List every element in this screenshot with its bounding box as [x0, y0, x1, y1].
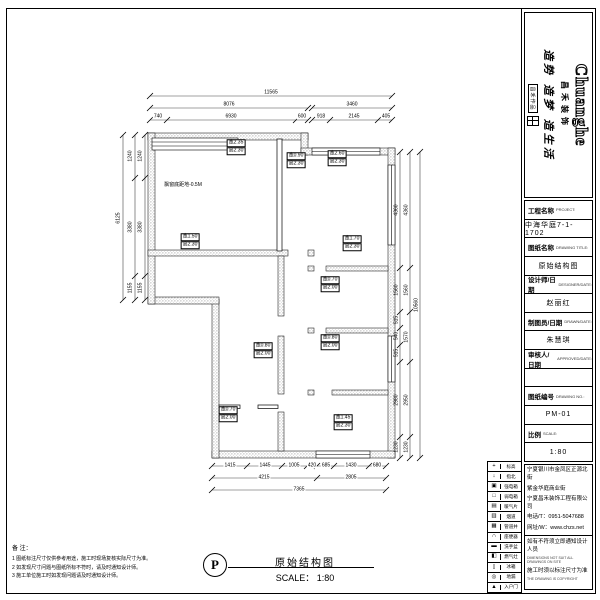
title-row-label: 工程名称PROJECT: — [525, 201, 592, 220]
window-size-label: 宽1.50高2.30 — [181, 233, 200, 249]
dimension-text: 1560 — [405, 284, 410, 295]
title-row-value: 赵丽红 — [525, 294, 592, 313]
legend-table: +标高↓指北▣强电箱□弱电箱▤暖气片▥烟道▦管道井∩座便器▬洗手盆◧燃气灶▯冰箱… — [487, 461, 522, 593]
dimension-text: 1155 — [139, 283, 144, 294]
note-line: 1 图纸标注尺寸仅供参考用途，施工时现场复核实际尺寸为准。 — [12, 555, 187, 564]
window-size-label: 宽0.70高2.00 — [219, 406, 238, 422]
legend-row: ◎地漏 — [488, 573, 521, 583]
label-height: 高2.30 — [287, 160, 306, 168]
field-label-en: APPROVED/DATE: — [557, 356, 592, 361]
dimension-text: 1240 — [139, 150, 144, 161]
dimension-text: 1240 — [129, 150, 134, 161]
label-width: 宽2.35 — [227, 139, 246, 147]
燃气灶-icon: ◧ — [488, 554, 501, 560]
window-grid-icon — [527, 116, 539, 126]
legend-label: 标高 — [501, 464, 521, 470]
弱电箱-icon: □ — [488, 494, 501, 500]
label-width: 宽0.70 — [219, 406, 238, 414]
title-row-value: PM-01 — [525, 406, 592, 425]
dimension-text: 4215 — [257, 476, 270, 481]
field-label: 图纸编号 — [528, 391, 554, 401]
field-label: 审核人/日期 — [528, 350, 555, 369]
company-name: 宁夏昌禾装饰工程有限公司 — [525, 494, 592, 513]
window-size-label: 宽1.70高2.30 — [343, 235, 362, 251]
dimension-text: 1230 — [405, 441, 410, 452]
label-width: 宽1.45 — [334, 414, 353, 422]
floor-plan-drawing — [0, 0, 520, 600]
dimension-text: 515 — [395, 349, 400, 357]
dimension-text: 685 — [321, 464, 331, 469]
label-height: 高2.30 — [328, 158, 347, 166]
warning-2-en: THE DRAWING IS COPYRIGHT — [525, 576, 592, 582]
brand-slogan: 造势 造梦 造生活 — [541, 49, 557, 161]
brand-seal: 昌禾作品 — [528, 84, 538, 112]
field-label-en: DESIGNER/DATE: — [559, 282, 593, 287]
legend-row: ▯冰箱 — [488, 563, 521, 573]
dimension-text: 1430 — [344, 464, 357, 469]
title-block: 工程名称PROJECT:中海华庭7-1-1702图纸名称DRAWING TITL… — [524, 200, 593, 462]
title-row-label: 制图员/日期DRAWN/DATE: — [525, 313, 592, 332]
座便器-icon: ∩ — [488, 534, 501, 540]
window-size-label: 宽0.80高2.00 — [254, 342, 273, 358]
legend-label: 弱电箱 — [501, 494, 521, 500]
company-website: 网址/W：www.chzs.net — [525, 523, 592, 533]
window-size-label: 飘窗底距地-0.5M — [164, 183, 202, 189]
label-height: 高2.30 — [181, 241, 200, 249]
dimension-text: 1155 — [129, 283, 134, 294]
dimension-text: 4360 — [405, 204, 410, 215]
dimension-text: 405 — [381, 115, 391, 120]
plan-scale: SCALE： 1:80 — [240, 571, 370, 584]
legend-row: ▬洗手盆 — [488, 543, 521, 553]
field-label: 工程名称 — [528, 205, 554, 215]
field-label: 制图员/日期 — [528, 317, 562, 327]
dimension-text: 2950 — [405, 394, 410, 405]
dimension-text: 600 — [297, 115, 307, 120]
烟道-icon: ▥ — [488, 514, 501, 520]
label-width: 宽1.50 — [181, 233, 200, 241]
管道井-icon: ▦ — [488, 524, 501, 530]
title-row-label: 审核人/日期APPROVED/DATE: — [525, 350, 592, 369]
legend-label: 指北 — [501, 474, 521, 480]
legend-label: 入户门 — [501, 584, 521, 590]
title-row-label: 设计师/日期DESIGNER/DATE: — [525, 276, 592, 295]
field-label-en: DRAWING NO.: — [556, 394, 585, 399]
window-size-label: 宽2.35高2.30 — [227, 139, 246, 155]
label-width: 宽0.80 — [254, 342, 273, 350]
dimension-text: 1445 — [258, 464, 271, 469]
label-height: 高2.00 — [254, 350, 273, 358]
legend-row: ▤暖气片 — [488, 502, 521, 512]
指北-icon: ↓ — [488, 474, 501, 480]
brand-name-cn: 昌禾装饰 — [559, 81, 570, 129]
legend-row: ▲入户门 — [488, 583, 521, 592]
legend-row: ▦管道井 — [488, 522, 521, 532]
dimension-text: 1230 — [395, 441, 400, 452]
标高-icon: + — [488, 464, 501, 470]
logo-rotated-content: Chuanghe 昌禾装饰 造势 造梦 造生活 昌禾作品 — [527, 16, 591, 194]
dimension-text: 6930 — [224, 115, 237, 120]
label-height: 高2.00 — [219, 414, 238, 422]
title-row-label: 图纸名称DRAWING TITLE: — [525, 238, 592, 257]
company-address-2: 紫金华庭商业街 — [525, 484, 592, 494]
dimension-text: 515 — [395, 316, 400, 324]
warning-2: 施工时须以标注尺寸为准 — [525, 566, 592, 576]
title-row-label: 图纸编号DRAWING NO.: — [525, 387, 592, 406]
dimension-text: 680 — [372, 464, 382, 469]
legend-row: ↓指北 — [488, 472, 521, 482]
dimension-text: 1005 — [287, 464, 300, 469]
title-row-value: 朱慧琪 — [525, 331, 592, 350]
note-line: 2 如发现尺寸问题与图纸所标不符时，请及时通知设计师。 — [12, 564, 187, 573]
field-label-en: DRAWN/DATE: — [564, 319, 592, 324]
legend-label: 燃气灶 — [501, 554, 521, 560]
logo-block: Chuanghe 昌禾装饰 造势 造梦 造生活 昌禾作品 — [524, 12, 593, 198]
dimension-text: 540 — [395, 332, 400, 340]
dimension-text: 1570 — [405, 331, 410, 342]
legend-row: □弱电箱 — [488, 492, 521, 502]
company-block: 宁夏银川市金凤区正源北街 紫金华庭商业街 宁夏昌禾装饰工程有限公司 电话/T：0… — [524, 464, 593, 590]
title-row-value — [525, 369, 592, 388]
dimension-text: 3460 — [345, 103, 358, 108]
legend-row: +标高 — [488, 462, 521, 472]
legend-label: 管道井 — [501, 524, 521, 530]
title-row-value: 中海华庭7-1-1702 — [525, 220, 592, 239]
field-label: 设计师/日期 — [528, 276, 557, 295]
legend-label: 地漏 — [501, 574, 521, 580]
field-label-en: DRAWING TITLE: — [556, 245, 588, 250]
dimension-text: 3380 — [139, 221, 144, 232]
field-label-en: PROJECT: — [556, 207, 575, 212]
title-row-label: 比例SCALE: — [525, 425, 592, 444]
label-width: 宽0.80 — [321, 334, 340, 342]
冰箱-icon: ▯ — [488, 565, 501, 571]
field-label: 图纸名称 — [528, 242, 554, 252]
legend-label: 强电箱 — [501, 484, 521, 490]
company-address-1: 宁夏银川市金凤区正源北街 — [525, 465, 592, 484]
legend-label: 冰箱 — [501, 564, 521, 570]
notes-items: 1 图纸标注尺寸仅供参考用途，施工时现场复核实际尺寸为准。2 如发现尺寸问题与图… — [12, 555, 187, 581]
dimension-text: 420 — [307, 464, 317, 469]
window-size-label: 宽2.60高2.30 — [328, 150, 347, 166]
warning-1-en: DIMENSIONS NOT SUIT ALL DRAWINGS ON SITE — [525, 555, 592, 565]
label-height: 高2.30 — [334, 422, 353, 430]
暖气片-icon: ▤ — [488, 504, 501, 510]
drawing-sheet: 1156580763460740693060091821454056125124… — [0, 0, 600, 600]
legend-row: ◧燃气灶 — [488, 553, 521, 563]
title-row-value: 原始结构图 — [525, 257, 592, 276]
field-label: 比例 — [528, 429, 541, 439]
brand-seal-row: 昌禾作品 — [527, 84, 539, 125]
dimension-text: 740 — [153, 115, 163, 120]
plan-mark-circle: P — [203, 553, 227, 577]
legend-label: 暖气片 — [501, 504, 521, 510]
label-height: 高2.30 — [227, 147, 246, 155]
label-width: 宽2.60 — [328, 150, 347, 158]
legend-row: ∩座便器 — [488, 533, 521, 543]
地漏-icon: ◎ — [488, 575, 501, 581]
入户门-icon: ▲ — [488, 585, 501, 591]
note-line: 3 施工单位施工时如发现问题请及时通知设计师。 — [12, 572, 187, 581]
window-size-label: 宽0.70高2.00 — [321, 276, 340, 292]
title-row-value: 1:80 — [525, 443, 592, 461]
dimension-text: 2980 — [395, 394, 400, 405]
legend-row: ▥烟道 — [488, 512, 521, 522]
dimension-text: 2805 — [344, 476, 357, 481]
dimension-text: 2145 — [347, 115, 360, 120]
field-label-en: SCALE: — [543, 431, 557, 436]
window-size-label: 宽0.90高2.30 — [287, 152, 306, 168]
强电箱-icon: ▣ — [488, 484, 501, 490]
legend-label: 座便器 — [501, 534, 521, 540]
dimension-text: 11565 — [263, 91, 279, 96]
plan-title: 原始结构图 — [240, 554, 370, 569]
label-width: 宽0.90 — [287, 152, 306, 160]
legend-row: ▣强电箱 — [488, 482, 521, 492]
洗手盆-icon: ▬ — [488, 544, 501, 550]
warning-1: 如有不符须立即通知设计人员 — [525, 535, 592, 556]
brand-logo: Chuanghe — [571, 64, 591, 147]
dimension-text: 8076 — [222, 103, 235, 108]
right-panel: Chuanghe 昌禾装饰 造势 造梦 造生活 昌禾作品 工程名称PROJECT… — [521, 8, 595, 592]
legend-label: 烟道 — [501, 514, 521, 520]
notes-block: 备 注： 1 图纸标注尺寸仅供参考用途，施工时现场复核实际尺寸为准。2 如发现尺… — [12, 544, 187, 581]
label-width: 宽0.70 — [321, 276, 340, 284]
window-size-label: 宽0.80高2.00 — [321, 334, 340, 350]
dimension-text: 7365 — [292, 488, 305, 493]
legend-label: 洗手盆 — [501, 544, 521, 550]
dimension-text: 1415 — [223, 464, 236, 469]
notes-title: 备 注： — [12, 544, 187, 554]
dimension-text: 918 — [316, 115, 326, 120]
label-height: 高2.30 — [343, 243, 362, 251]
dimension-text: 4360 — [395, 204, 400, 215]
window-size-label: 宽1.45高2.30 — [334, 414, 353, 430]
light-partitions — [219, 139, 282, 409]
dimension-text: 10560 — [415, 298, 420, 312]
label-height: 高2.00 — [321, 284, 340, 292]
dimension-text: 6125 — [117, 212, 122, 223]
company-phone: 电话/T：0951-5047688 — [525, 512, 592, 522]
label-height: 高2.00 — [321, 342, 340, 350]
label-width: 宽1.70 — [343, 235, 362, 243]
dimension-text: 1560 — [395, 284, 400, 295]
dimension-text: 3380 — [129, 221, 134, 232]
